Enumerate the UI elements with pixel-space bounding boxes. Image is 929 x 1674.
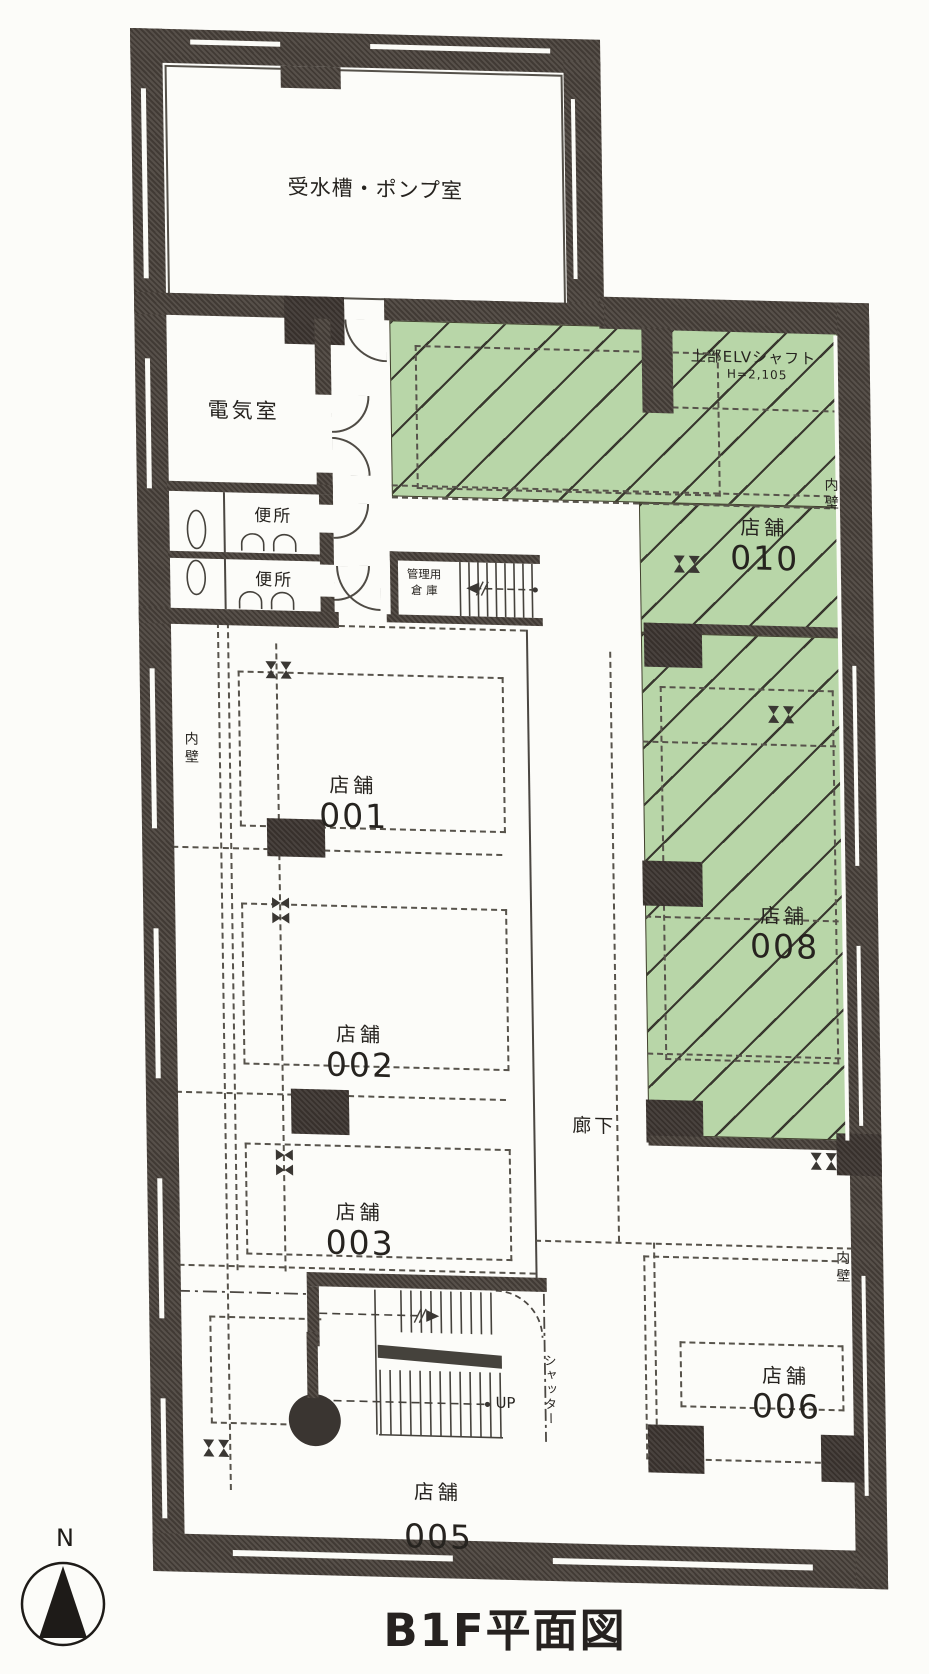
room-label-toilet-lower: 便所: [255, 565, 293, 591]
north-compass: N: [18, 1524, 110, 1654]
corridor-label: 廊下: [572, 1111, 616, 1139]
shop-type: 店舗: [751, 1359, 820, 1390]
shop-number: 008: [750, 928, 820, 965]
shop-label-008: 店舗 008: [749, 899, 819, 965]
north-label: N: [56, 1524, 74, 1552]
shop-label-003: 店舗 003: [325, 1195, 395, 1261]
elv-shaft-height: H=2,105: [727, 367, 788, 383]
shutter-label: シャッター: [540, 1354, 560, 1427]
storage-line2: 倉 庫: [407, 582, 442, 598]
shop-type: 店舗: [325, 1195, 394, 1226]
elv-shaft-label: 上部ELVシャフト: [691, 345, 817, 369]
inner-wall-label-right-upper: 内壁: [820, 477, 841, 513]
shop-label-010: 店舗 010: [730, 511, 800, 577]
shop-type: 店舗: [749, 899, 818, 930]
shop-number: 002: [326, 1047, 396, 1084]
room-label-electrical: 電気室: [207, 394, 279, 426]
shop-label-005: 店舗 005: [403, 1475, 473, 1555]
shop-number: 003: [325, 1224, 395, 1261]
floor-plan-page: 受水槽・ポンプ室 電気室 便所 便所 管理用 倉 庫 上部ELVシャフト H=2…: [0, 0, 929, 1674]
floor-plan: 受水槽・ポンプ室 電気室 便所 便所 管理用 倉 庫 上部ELVシャフト H=2…: [130, 28, 888, 1591]
inner-wall-label-right-lower: 内壁: [832, 1250, 853, 1287]
shop-label-002: 店舗 002: [325, 1018, 395, 1084]
room-label-toilet-upper: 便所: [254, 501, 292, 527]
shop-number: 010: [730, 540, 800, 577]
shop-number: 001: [319, 797, 389, 834]
page-title: B1F平面図: [383, 1594, 626, 1659]
room-label-storage: 管理用 倉 庫: [407, 567, 442, 599]
shop-type: 店舗: [319, 768, 388, 799]
room-label-pump: 受水槽・ポンプ室: [287, 171, 463, 205]
shop-label-006: 店舗 006: [751, 1359, 821, 1425]
shop-label-001: 店舗 001: [319, 768, 389, 834]
shop-number: 006: [752, 1388, 822, 1425]
labels-layer: 受水槽・ポンプ室 電気室 便所 便所 管理用 倉 庫 上部ELVシャフト H=2…: [130, 28, 888, 1591]
up-label: UP: [495, 1394, 515, 1413]
shop-number: 005: [404, 1518, 474, 1555]
shop-type: 店舗: [730, 511, 799, 542]
shop-type: 店舗: [403, 1475, 472, 1506]
storage-line1: 管理用: [407, 567, 442, 583]
shop-type: 店舗: [325, 1018, 394, 1049]
inner-wall-label-left: 内壁: [181, 731, 202, 768]
compass-needle: [39, 1566, 87, 1638]
